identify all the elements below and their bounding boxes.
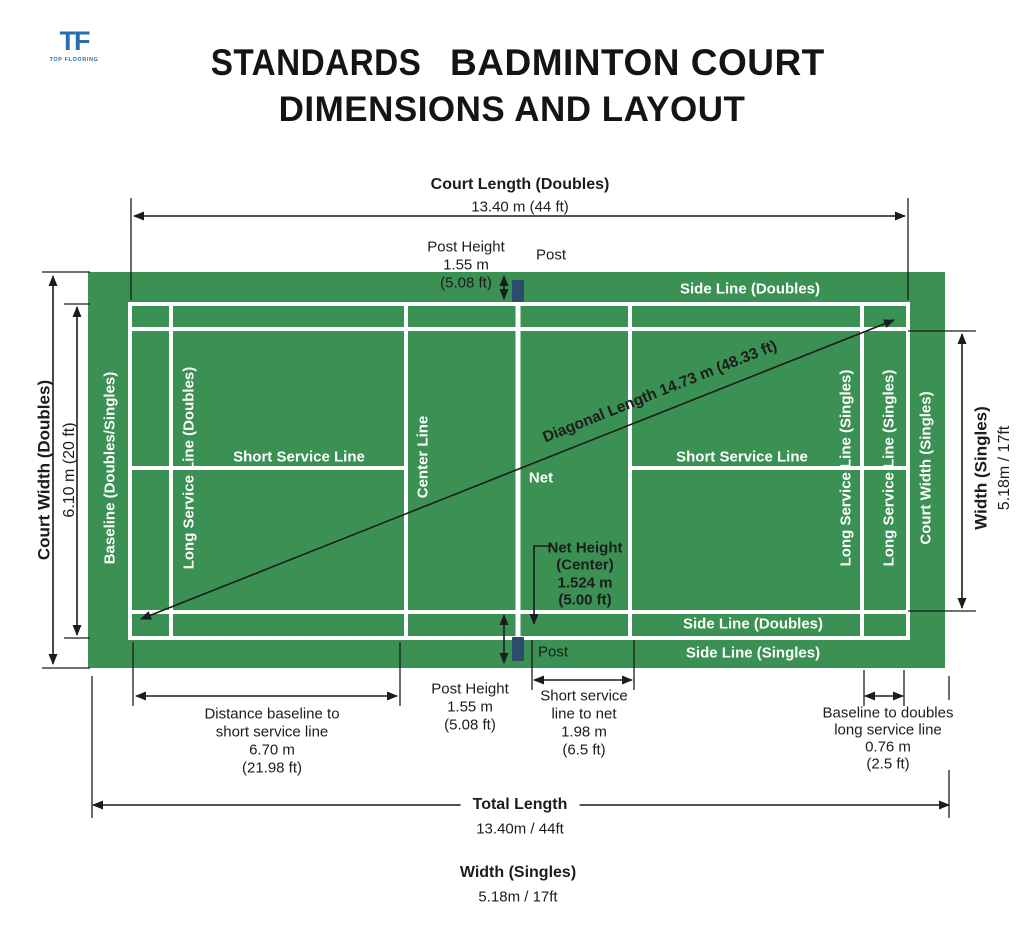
- court-width-doubles-value: 6.10 m (20 ft): [62, 422, 78, 517]
- post-height-bottom-l2: 1.55 m: [447, 700, 493, 715]
- long-service-singles-label-2: Long Service Line (Singles): [882, 370, 897, 567]
- dist-baseline-l4: (21.98 ft): [242, 761, 302, 776]
- post-height-top-l1: Post Height: [427, 240, 505, 255]
- long-service-doubles-label: Long Service Line (Doubles): [182, 367, 197, 570]
- title-line2: DIMENSIONS AND LAYOUT: [0, 90, 1024, 130]
- side-line-singles-bottom-label: Side Line (Singles): [686, 646, 820, 661]
- title-line1-main: BADMINTON COURT: [450, 42, 825, 83]
- width-singles-right-label: Width (Singles): [973, 406, 990, 530]
- net-height-l4: (5.00 ft): [558, 593, 611, 608]
- title-line1-prefix: STANDARDS: [211, 42, 422, 84]
- post-height-bottom-l1: Post Height: [431, 682, 509, 697]
- post-height-top-l3: (5.08 ft): [440, 276, 492, 291]
- ssl-to-net-l2: line to net: [551, 707, 616, 722]
- baseline-to-lsl-l1: Baseline to doubles: [823, 706, 954, 721]
- dist-baseline-l2: short service line: [216, 725, 329, 740]
- center-line-label: Center Line: [416, 416, 431, 499]
- net-post-top: [512, 280, 524, 302]
- side-line-doubles-top-label: Side Line (Doubles): [680, 282, 820, 297]
- ssl-to-net-l3: 1.98 m: [561, 725, 607, 740]
- post-height-top-l2: 1.55 m: [443, 258, 489, 273]
- width-singles-bottom-value: 5.18m / 17ft: [478, 890, 557, 905]
- dist-baseline-l3: 6.70 m: [249, 743, 295, 758]
- court-diagram: [0, 0, 1024, 934]
- net-height-l3: 1.524 m: [557, 576, 612, 591]
- ssl-to-net-l1: Short service: [540, 689, 628, 704]
- baseline-to-lsl-l2: long service line: [834, 723, 942, 738]
- short-service-line-left-label: Short Service Line: [233, 450, 365, 465]
- title-line1: STANDARDS BADMINTON COURT: [0, 42, 1024, 84]
- court-length-label: Court Length (Doubles): [431, 177, 610, 193]
- dist-baseline-l1: Distance baseline to: [204, 707, 339, 722]
- net-height-l2: (Center): [556, 558, 614, 573]
- side-line-doubles-bottom-label: Side Line (Doubles): [683, 617, 823, 632]
- total-length-value: 13.40m / 44ft: [476, 822, 564, 837]
- court-length-value: 13.40 m (44 ft): [471, 200, 569, 215]
- post-height-bottom-l3: (5.08 ft): [444, 718, 496, 733]
- baseline-to-lsl-l3: 0.76 m: [865, 740, 911, 755]
- total-length-label: Total Length: [461, 797, 580, 813]
- long-service-singles-label-1: Long Service Line (Singles): [839, 370, 854, 567]
- post-top-label: Post: [536, 248, 566, 263]
- net-post-bottom: [512, 637, 524, 661]
- court-width-singles-label: Court Width (Singles): [919, 391, 934, 544]
- badminton-court-infographic: TF TOP FLOORING STANDARDS BADMINTON COUR…: [0, 0, 1024, 934]
- short-service-line-right-label: Short Service Line: [676, 450, 808, 465]
- net-height-l1: Net Height: [548, 541, 623, 556]
- ssl-to-net-l4: (6.5 ft): [562, 743, 605, 758]
- baseline-label: Baseline (Doubles/Singles): [103, 372, 118, 565]
- net-label: Net: [529, 471, 553, 486]
- court-width-doubles-label: Court Width (Doubles): [36, 380, 53, 560]
- width-singles-bottom-label: Width (Singles): [460, 865, 576, 881]
- post-bottom-label: Post: [538, 645, 568, 660]
- width-singles-right-value: 5.18m / 17ft: [997, 426, 1013, 511]
- page-title: STANDARDS BADMINTON COURT DIMENSIONS AND…: [0, 42, 1024, 130]
- baseline-to-lsl-l4: (2.5 ft): [866, 757, 909, 772]
